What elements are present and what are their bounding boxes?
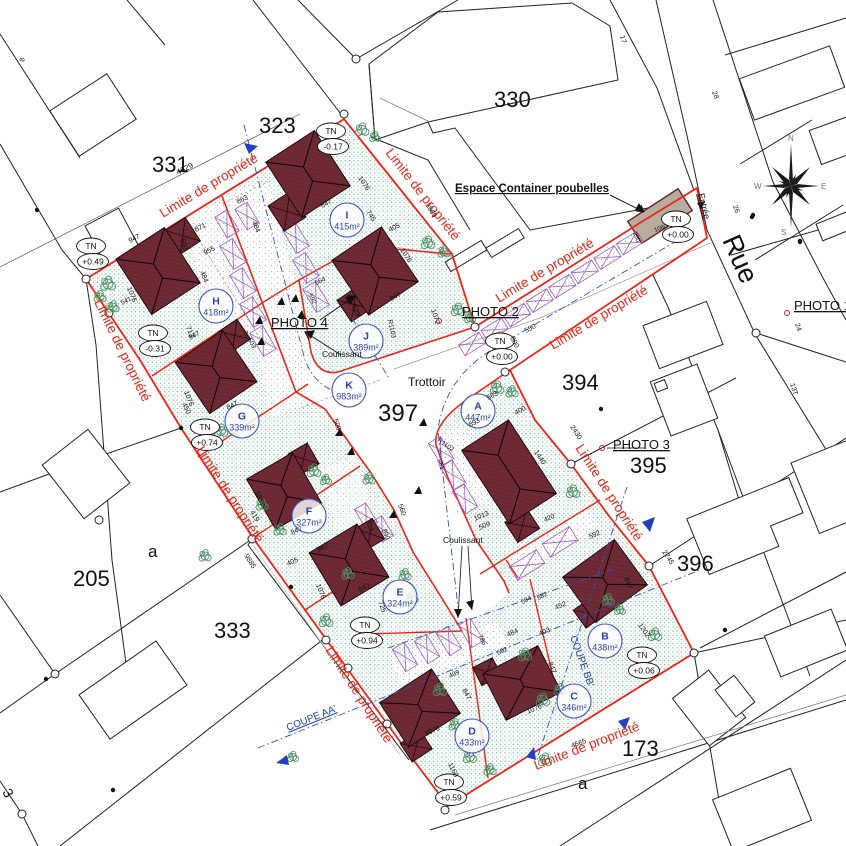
svg-text:W: W <box>754 182 762 191</box>
svg-text:TN: TN <box>147 328 158 338</box>
svg-text:TN: TN <box>85 241 96 251</box>
svg-text:396: 396 <box>677 551 714 576</box>
svg-text:TN: TN <box>494 336 505 346</box>
svg-text:333: 333 <box>214 618 251 643</box>
svg-text:D: D <box>468 726 476 738</box>
svg-text:397: 397 <box>378 400 418 427</box>
svg-text:323: 323 <box>259 113 296 138</box>
svg-text:418m²: 418m² <box>203 308 229 318</box>
svg-text:H: H <box>212 296 220 308</box>
svg-text:-0.17: -0.17 <box>323 141 343 151</box>
svg-text:E: E <box>821 182 826 191</box>
svg-text:+0.00: +0.00 <box>667 229 689 239</box>
svg-text:339m²: 339m² <box>229 423 255 433</box>
svg-text:438m²: 438m² <box>592 643 618 653</box>
svg-text:394: 394 <box>562 370 599 395</box>
svg-text:K: K <box>345 380 353 392</box>
svg-text:+0.06: +0.06 <box>633 665 655 675</box>
svg-text:+0.94: +0.94 <box>356 635 378 645</box>
svg-text:I: I <box>346 210 349 222</box>
svg-text:F: F <box>306 506 313 518</box>
svg-text:G: G <box>238 411 246 423</box>
svg-text:346m²: 346m² <box>561 703 587 713</box>
svg-text:+0.49: +0.49 <box>82 256 104 266</box>
svg-text:E: E <box>396 587 403 599</box>
svg-text:a: a <box>148 542 158 561</box>
svg-text:Trottoir: Trottoir <box>408 375 446 389</box>
svg-text:PHOTO 3: PHOTO 3 <box>613 437 670 452</box>
svg-text:433m²: 433m² <box>459 738 485 748</box>
svg-text:TN: TN <box>325 126 336 136</box>
svg-text:TN: TN <box>670 214 681 224</box>
svg-text:N: N <box>788 134 794 143</box>
svg-text:983m²: 983m² <box>336 392 362 402</box>
svg-text:TN: TN <box>636 650 647 660</box>
svg-text:S: S <box>781 228 786 237</box>
svg-text:330: 330 <box>494 87 531 112</box>
svg-text:205: 205 <box>73 566 110 591</box>
svg-text:PHOTO 2: PHOTO 2 <box>462 304 519 319</box>
svg-text:a: a <box>578 774 588 793</box>
svg-text:415m²: 415m² <box>334 222 360 232</box>
svg-text:C: C <box>570 691 578 703</box>
svg-text:B: B <box>601 631 609 643</box>
svg-text:A: A <box>474 401 482 413</box>
svg-text:173: 173 <box>622 736 659 761</box>
svg-text:TN: TN <box>199 422 210 432</box>
svg-text:TN: TN <box>359 620 370 630</box>
svg-text:+0.00: +0.00 <box>491 351 513 361</box>
svg-text:J: J <box>363 331 369 343</box>
svg-text:Coulissant: Coulissant <box>443 535 483 545</box>
svg-text:395: 395 <box>630 453 667 478</box>
svg-text:324m²: 324m² <box>387 599 413 609</box>
svg-text:Coulissant: Coulissant <box>322 349 362 359</box>
svg-text:PHOTO 1: PHOTO 1 <box>794 298 846 313</box>
svg-text:+0.59: +0.59 <box>440 792 462 802</box>
svg-text:-0.31: -0.31 <box>145 343 165 353</box>
svg-text:Espace Container poubelles: Espace Container poubelles <box>455 183 609 195</box>
